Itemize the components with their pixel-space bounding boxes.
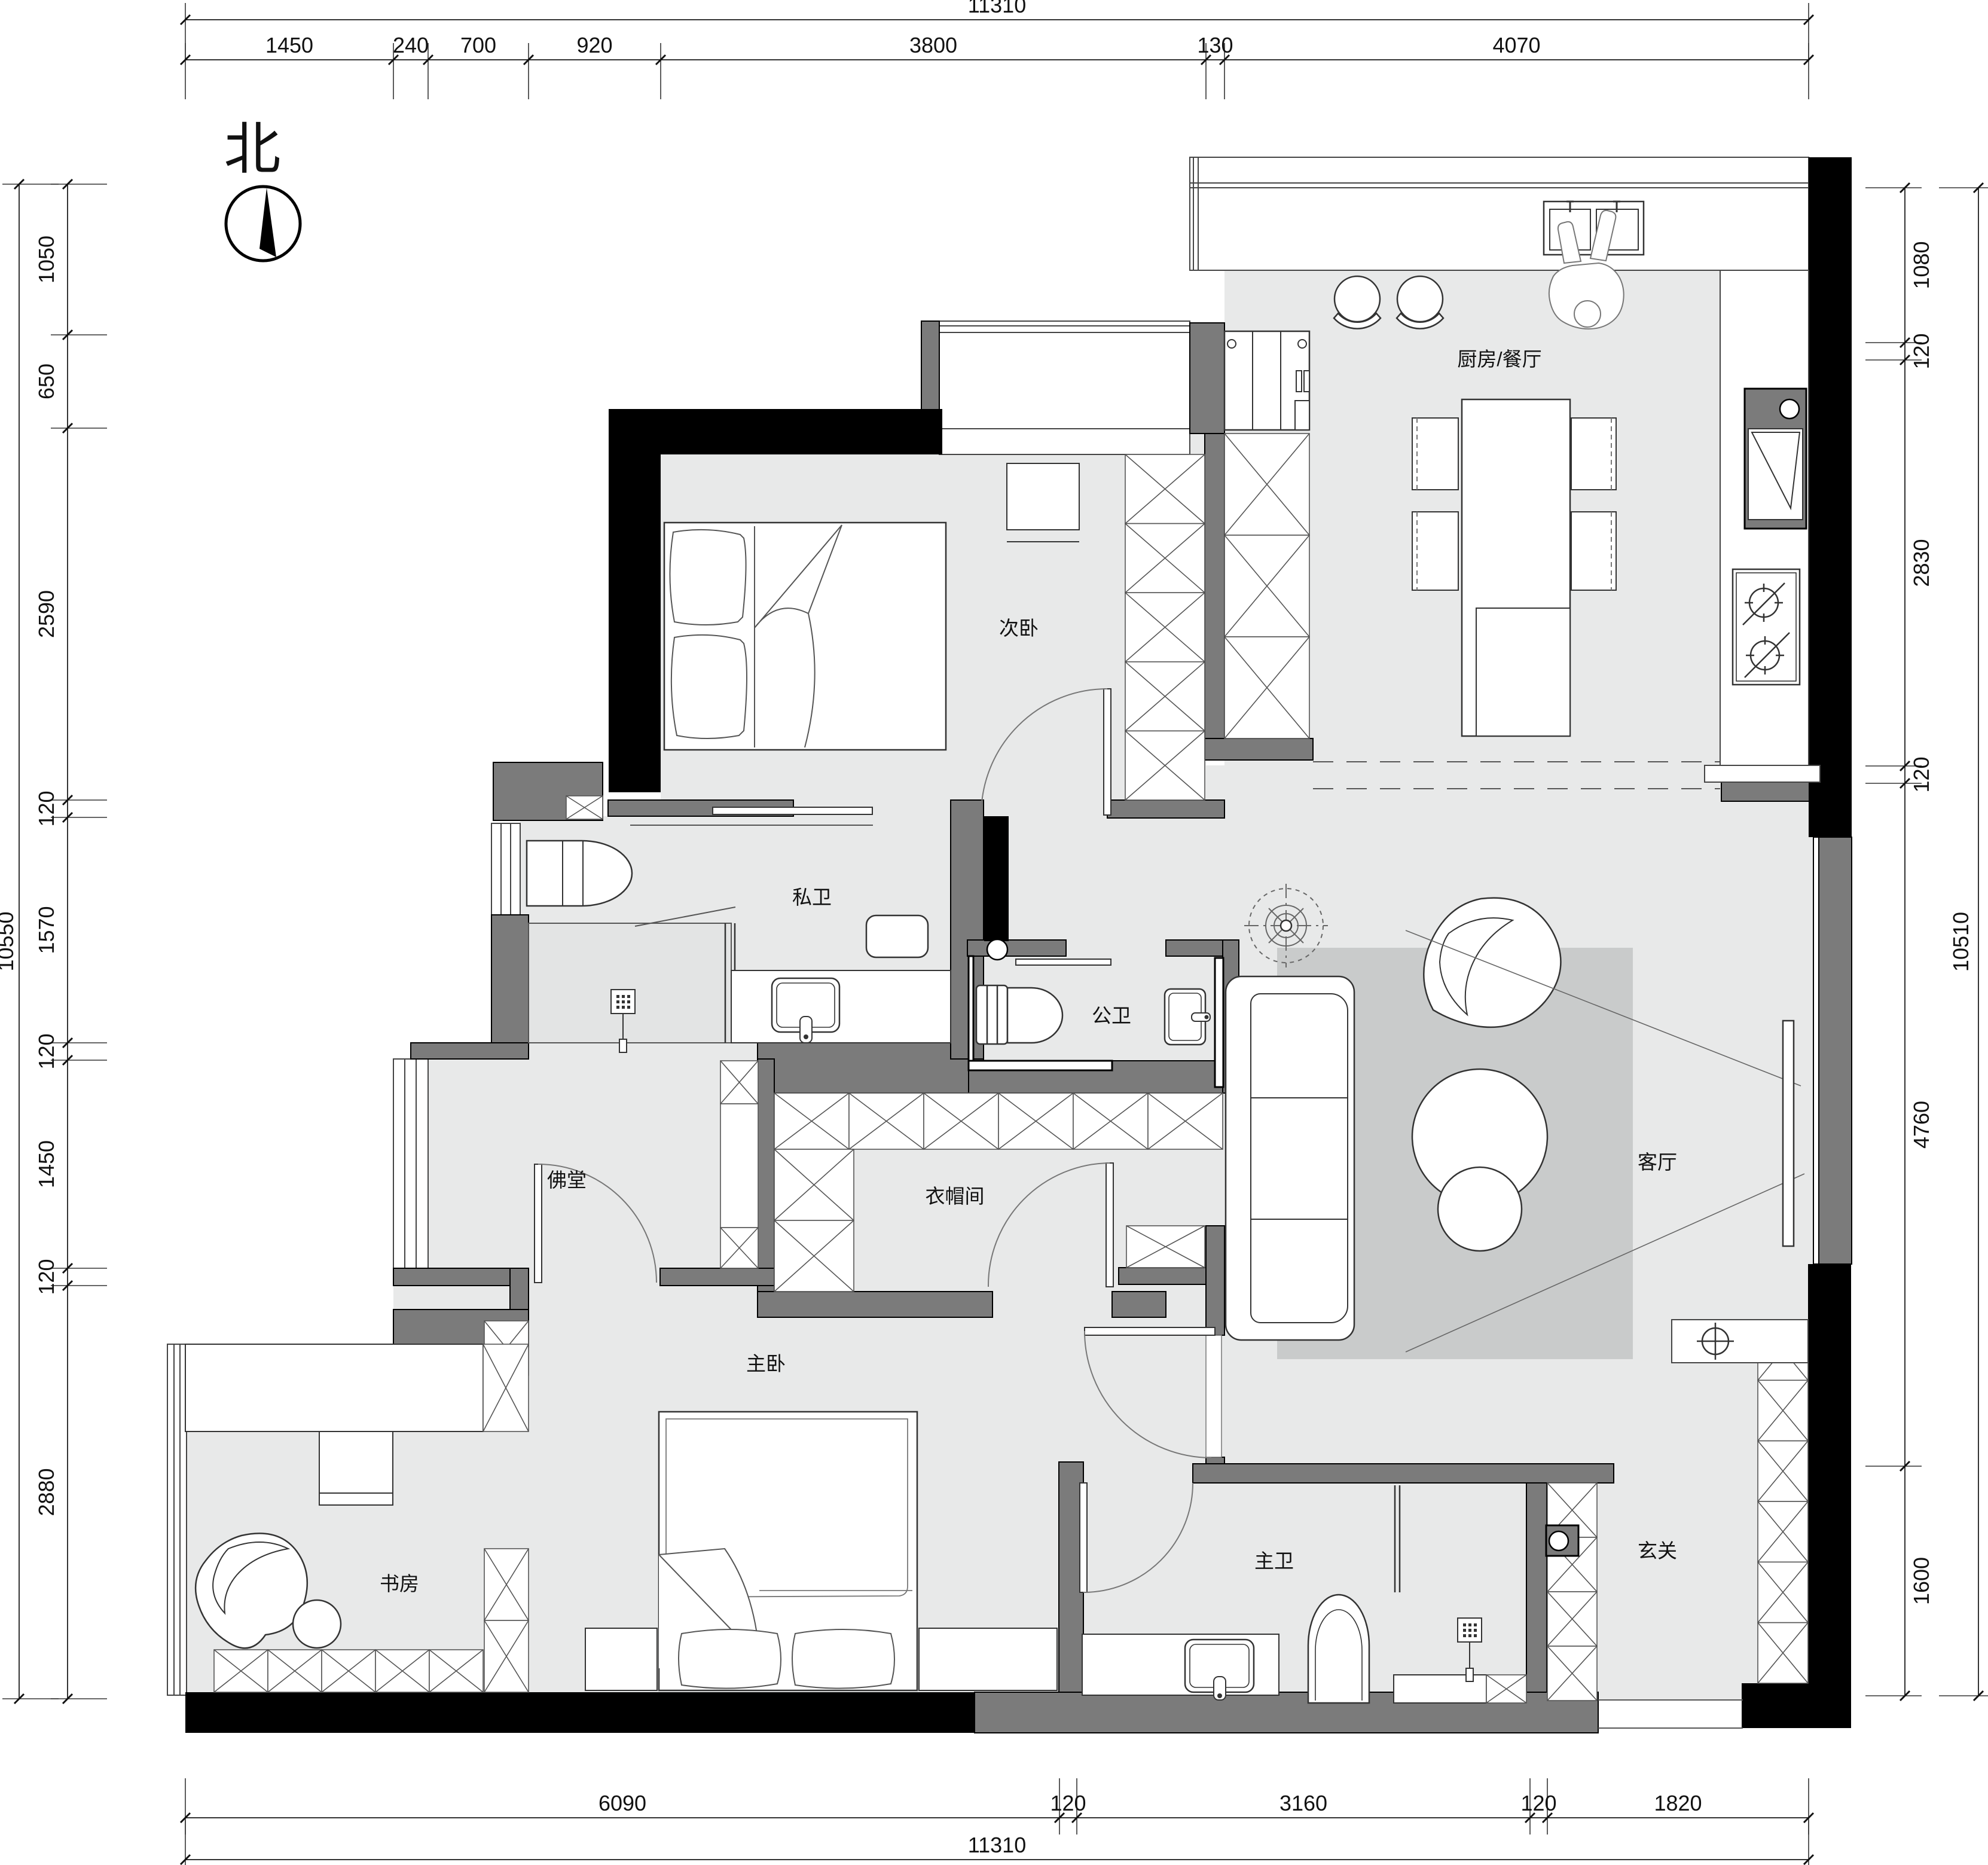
- svg-text:1050: 1050: [34, 236, 59, 283]
- svg-text:120: 120: [34, 790, 59, 826]
- svg-text:2880: 2880: [34, 1468, 59, 1516]
- svg-text:公卫: 公卫: [1092, 1005, 1131, 1027]
- svg-text:厨房/餐厅: 厨房/餐厅: [1457, 348, 1541, 370]
- svg-text:120: 120: [1050, 1791, 1086, 1815]
- svg-text:10510: 10510: [1949, 912, 1973, 972]
- svg-text:700: 700: [460, 33, 496, 57]
- svg-text:主卧: 主卧: [746, 1353, 786, 1375]
- svg-text:客厅: 客厅: [1638, 1151, 1677, 1173]
- svg-text:佛堂: 佛堂: [547, 1169, 587, 1191]
- svg-text:130: 130: [1197, 33, 1233, 57]
- svg-text:4070: 4070: [1492, 33, 1540, 57]
- svg-text:3160: 3160: [1279, 1791, 1327, 1815]
- svg-text:北: 北: [224, 118, 280, 181]
- svg-text:1450: 1450: [265, 33, 313, 57]
- svg-text:主卫: 主卫: [1254, 1550, 1294, 1572]
- svg-text:1570: 1570: [34, 906, 59, 954]
- svg-text:玄关: 玄关: [1638, 1540, 1677, 1562]
- svg-text:11310: 11310: [968, 0, 1026, 17]
- svg-text:650: 650: [34, 364, 59, 399]
- svg-text:120: 120: [1520, 1791, 1556, 1815]
- svg-text:2590: 2590: [34, 590, 59, 638]
- svg-text:私卫: 私卫: [792, 886, 832, 908]
- svg-text:1600: 1600: [1909, 1557, 1934, 1605]
- svg-text:120: 120: [34, 1033, 59, 1069]
- svg-text:书房: 书房: [380, 1573, 419, 1595]
- svg-text:1820: 1820: [1654, 1791, 1702, 1815]
- svg-text:6090: 6090: [598, 1791, 646, 1815]
- svg-text:920: 920: [576, 33, 612, 57]
- svg-text:1450: 1450: [34, 1140, 59, 1188]
- svg-text:3800: 3800: [909, 33, 957, 57]
- svg-text:120: 120: [1909, 333, 1934, 369]
- svg-text:240: 240: [393, 33, 429, 57]
- svg-text:次卧: 次卧: [999, 617, 1039, 639]
- svg-text:120: 120: [1909, 756, 1934, 792]
- svg-text:2830: 2830: [1909, 539, 1934, 587]
- svg-text:10550: 10550: [0, 911, 18, 971]
- svg-text:4760: 4760: [1909, 1101, 1934, 1149]
- svg-text:1080: 1080: [1909, 241, 1934, 289]
- svg-text:衣帽间: 衣帽间: [926, 1185, 985, 1207]
- svg-text:11310: 11310: [968, 1833, 1026, 1857]
- svg-text:120: 120: [34, 1259, 59, 1295]
